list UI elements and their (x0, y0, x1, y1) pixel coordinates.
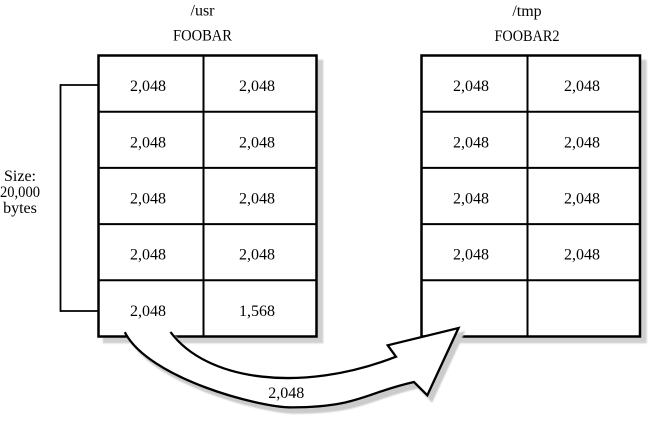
svg-text:/tmp: /tmp (512, 3, 541, 20)
svg-text:2,048: 2,048 (453, 78, 489, 95)
svg-text:1,568: 1,568 (239, 303, 275, 320)
svg-text:2,048: 2,048 (130, 303, 166, 320)
svg-text:2,048: 2,048 (239, 78, 275, 95)
svg-text:FOOBAR2: FOOBAR2 (495, 28, 560, 45)
svg-text:bytes: bytes (3, 200, 37, 217)
svg-text:2,048: 2,048 (130, 134, 166, 151)
svg-text:2,048: 2,048 (130, 247, 166, 264)
svg-text:2,048: 2,048 (239, 134, 275, 151)
svg-text:FOOBAR: FOOBAR (173, 27, 232, 44)
svg-text:2,048: 2,048 (453, 134, 489, 151)
svg-text:/usr: /usr (191, 2, 216, 19)
svg-text:2,048: 2,048 (130, 78, 166, 95)
svg-text:2,048: 2,048 (453, 247, 489, 264)
svg-text:2,048: 2,048 (453, 191, 489, 208)
svg-text:2,048: 2,048 (130, 191, 166, 208)
svg-text:Size:: Size: (4, 168, 36, 185)
svg-text:2,048: 2,048 (268, 385, 304, 402)
svg-text:2,048: 2,048 (239, 191, 275, 208)
svg-text:20,000: 20,000 (0, 184, 40, 201)
svg-text:2,048: 2,048 (564, 78, 600, 95)
svg-text:2,048: 2,048 (564, 191, 600, 208)
svg-text:2,048: 2,048 (564, 134, 600, 151)
svg-text:2,048: 2,048 (239, 247, 275, 264)
svg-text:2,048: 2,048 (564, 247, 600, 264)
